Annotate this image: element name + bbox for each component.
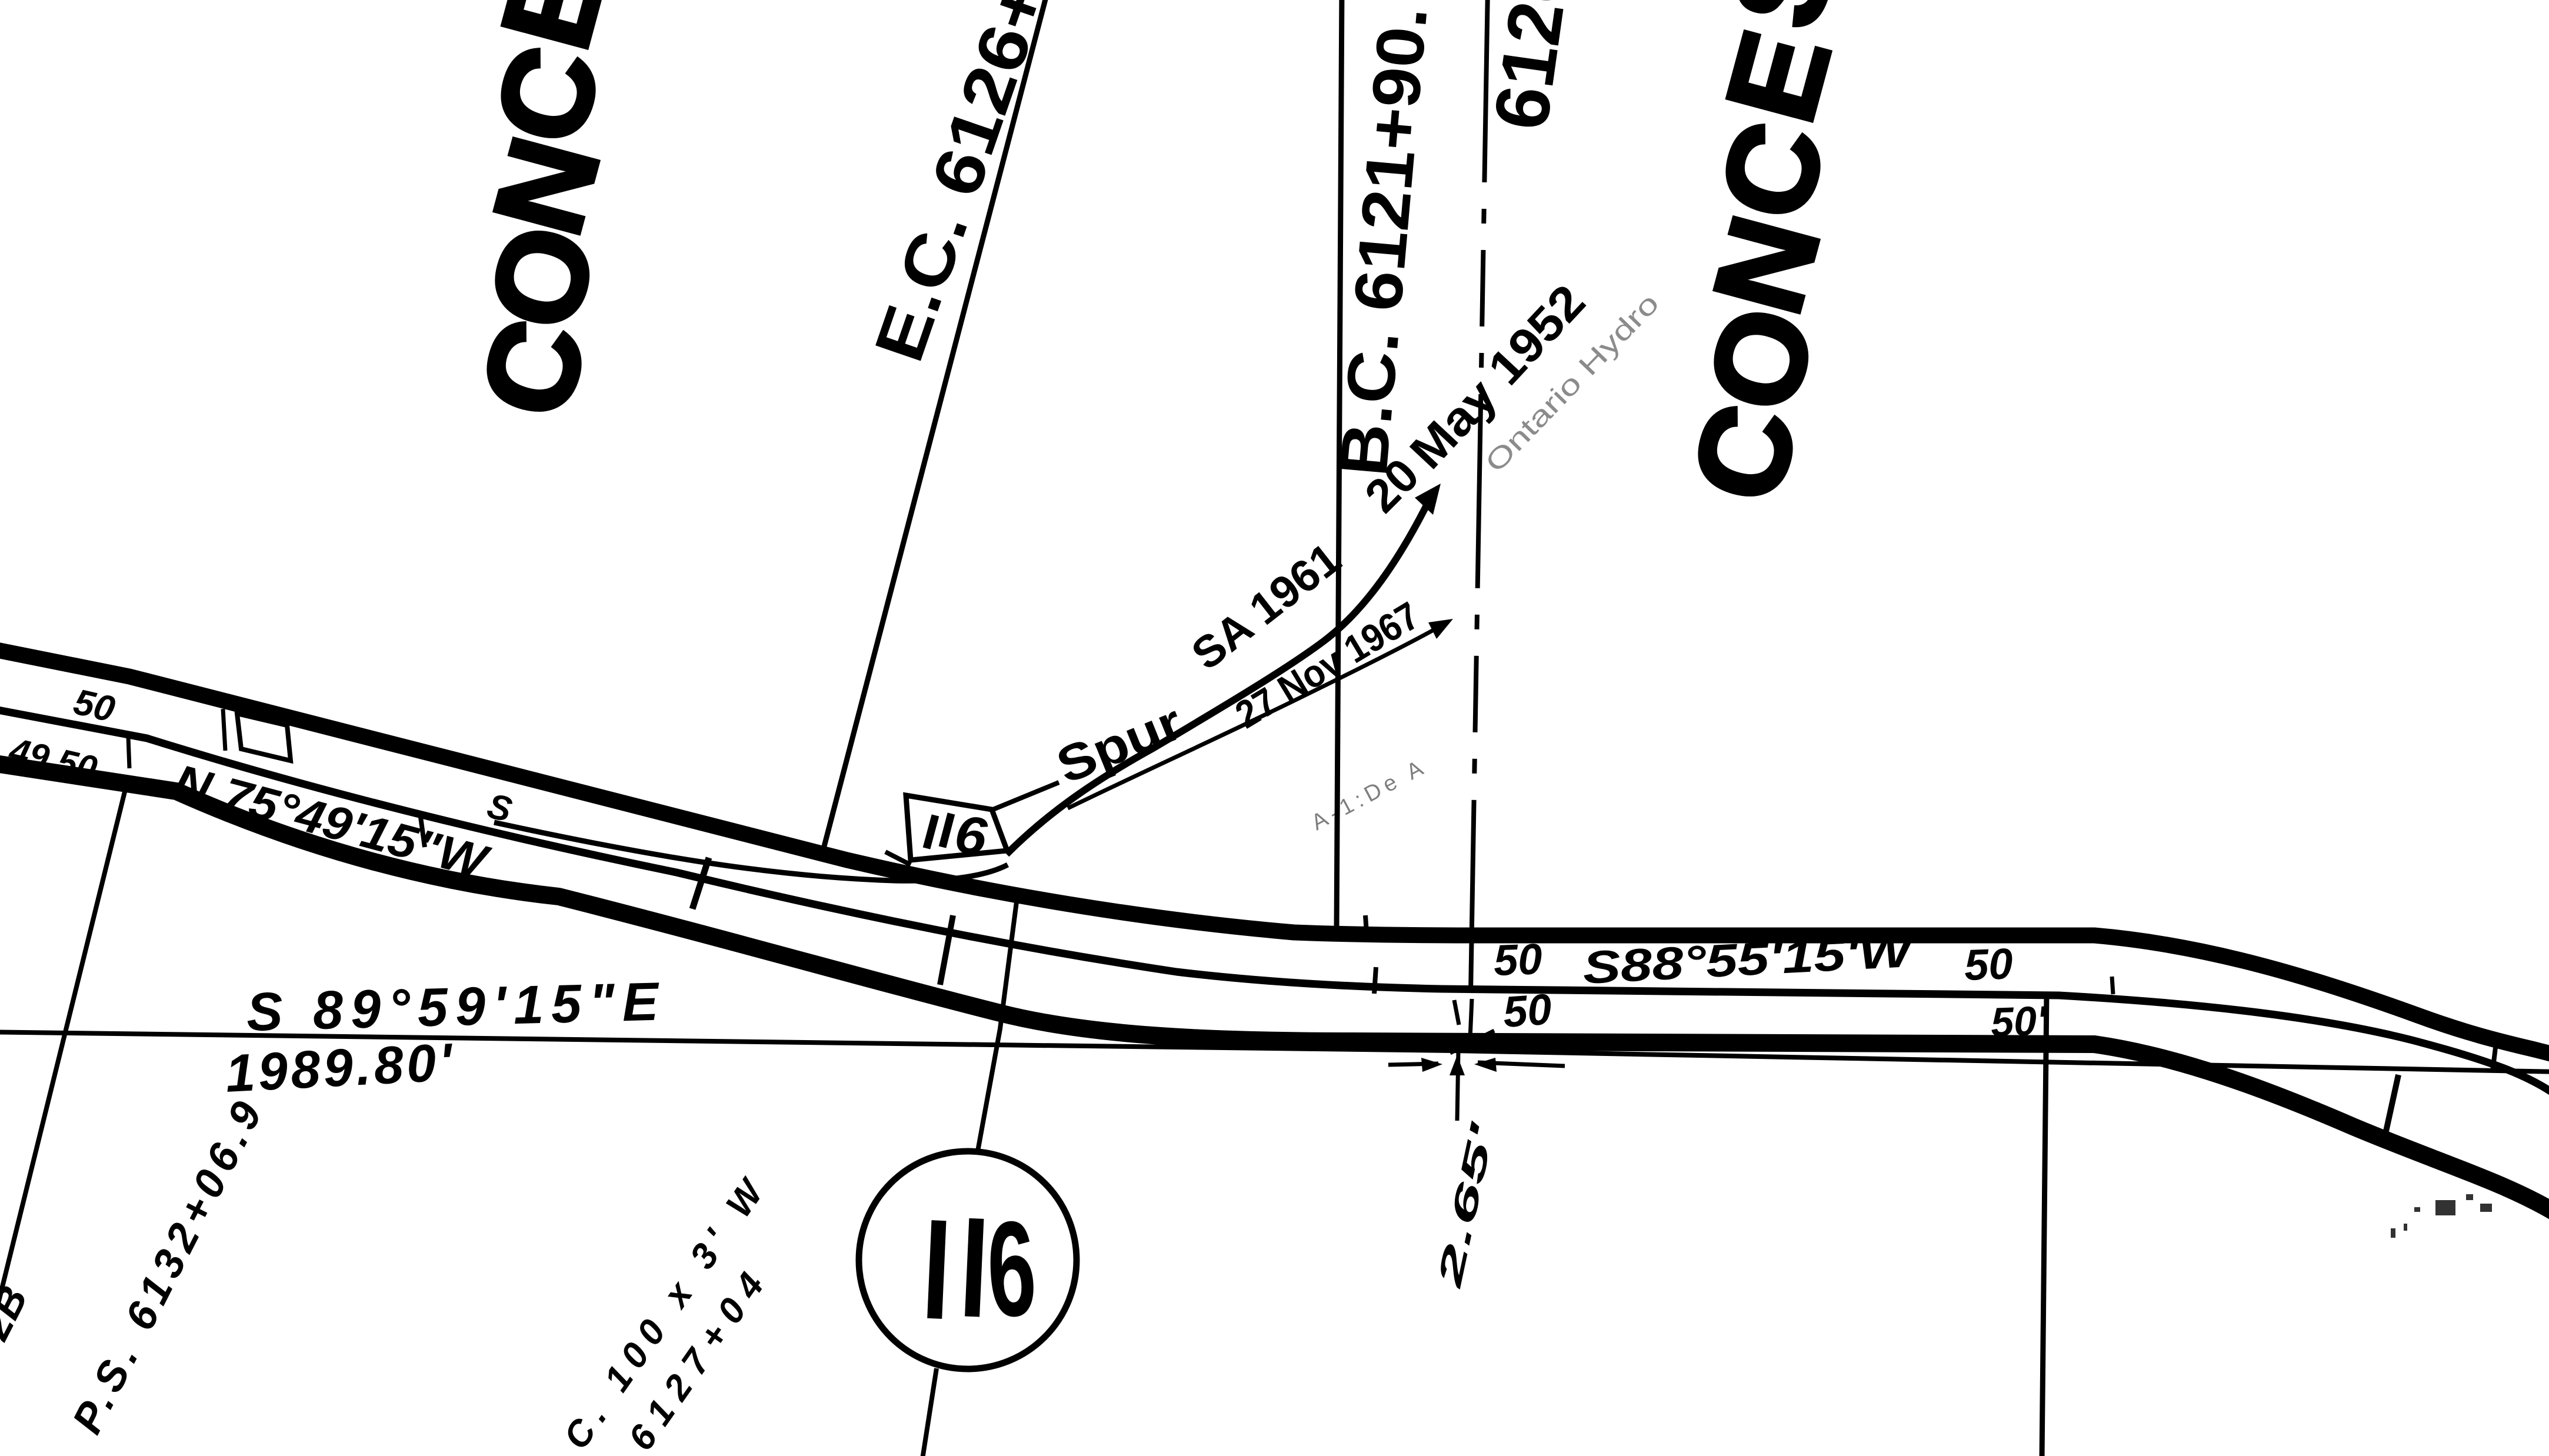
svg-text:50: 50 <box>1964 939 2014 989</box>
svg-text:50: 50 <box>1501 984 1553 1037</box>
svg-text:6: 6 <box>984 1192 1039 1345</box>
svg-text:50: 50 <box>1493 934 1543 985</box>
svg-text:50': 50' <box>1990 998 2049 1045</box>
